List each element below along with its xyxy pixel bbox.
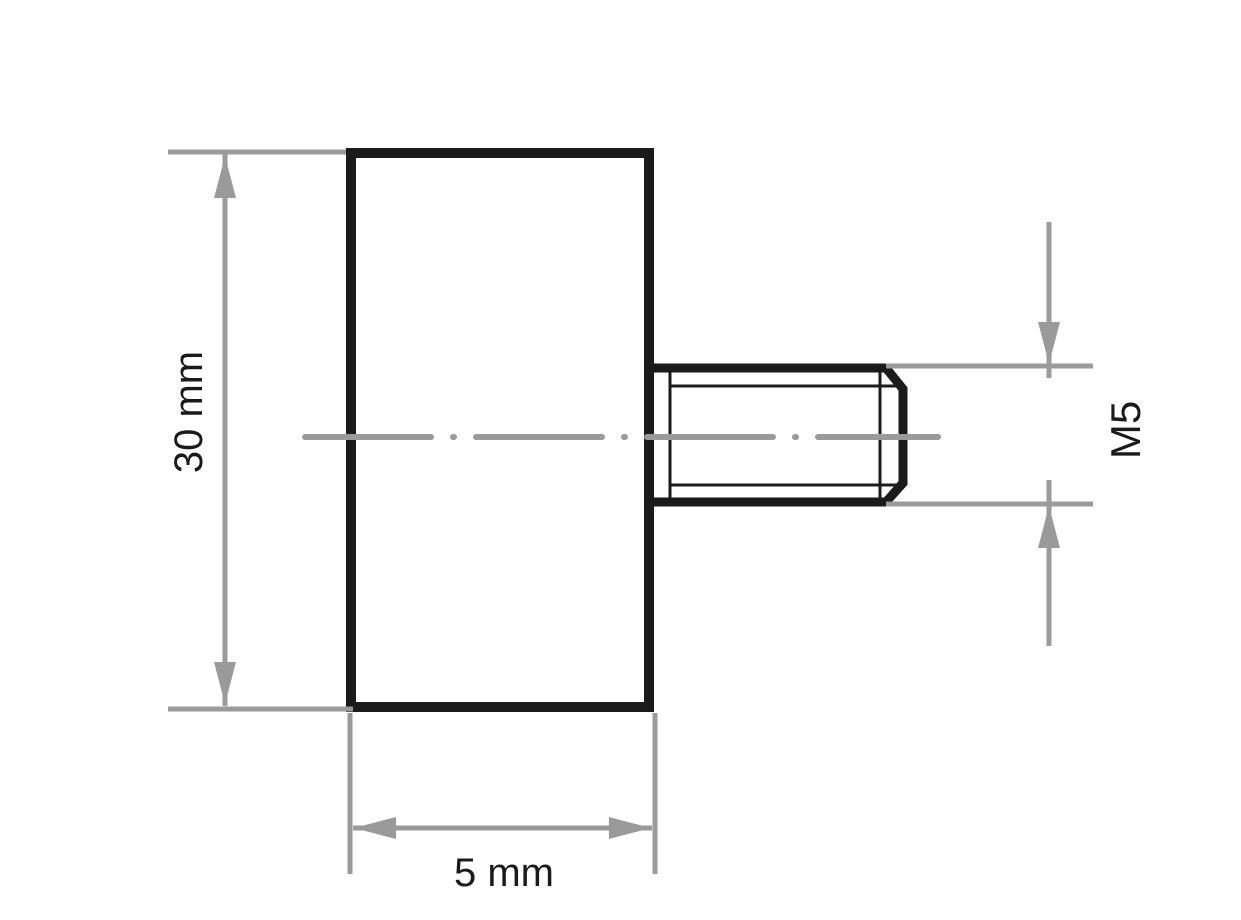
width-dimension-label: 5 mm xyxy=(454,851,554,895)
thread-size-label: M5 xyxy=(1102,401,1149,459)
technical-drawing-canvas: 30 mm 5 mm M5 xyxy=(0,0,1241,920)
body-outline xyxy=(351,153,649,707)
height-dimension-label: 30 mm xyxy=(167,351,211,473)
technical-drawing-page: 30 mm 5 mm M5 xyxy=(0,0,1241,920)
